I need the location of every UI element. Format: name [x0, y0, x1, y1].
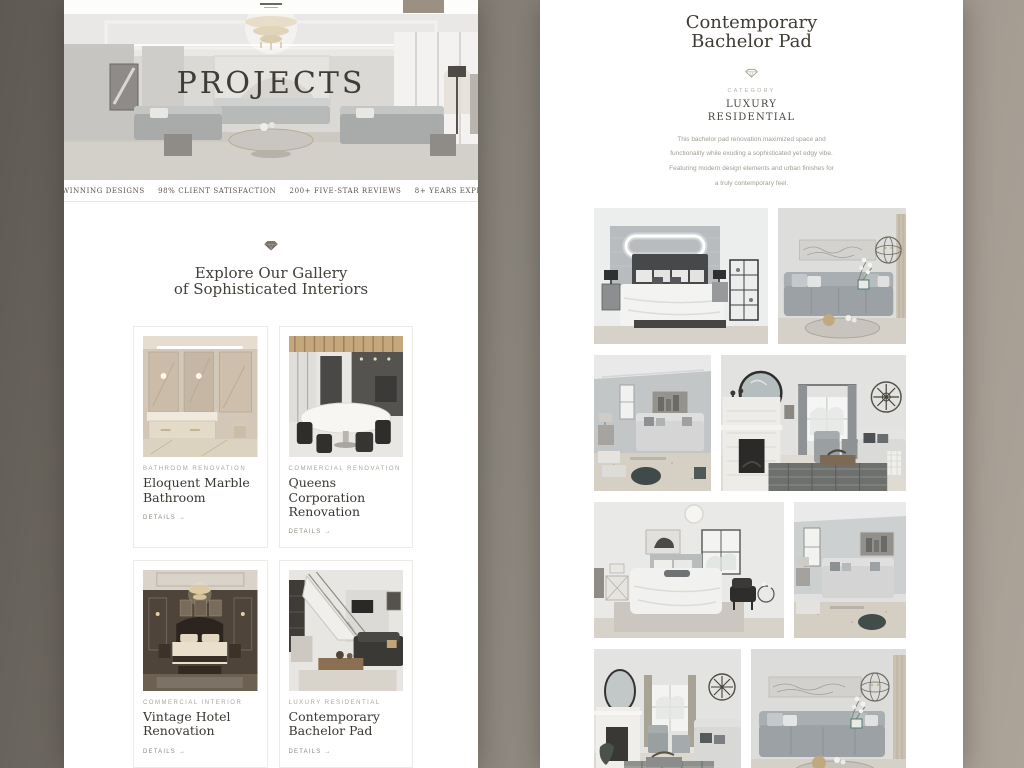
- project-detail-page: Contemporary Bachelor Pad CATEGORY LUXUR…: [540, 0, 963, 768]
- gallery-photo-sofa-art[interactable]: [778, 208, 906, 344]
- top-navbar: [64, 0, 478, 14]
- detail-title: Contemporary Bachelor Pad: [540, 14, 963, 52]
- stat-item: 200+ FIVE-STAR REVIEWS: [284, 187, 408, 195]
- page-title: PROJECTS: [64, 66, 478, 101]
- project-description: This bachelor pad renovation maximized s…: [637, 133, 867, 192]
- diamond-icon: [264, 238, 278, 256]
- project-card-bachelor-pad[interactable]: LUXURY RESIDENTIAL Contemporary Bachelor…: [279, 560, 414, 768]
- project-card-image[interactable]: [289, 336, 404, 457]
- gallery-photo-bedroom-white[interactable]: [594, 502, 784, 638]
- gallery-photo-bedroom-led[interactable]: [594, 208, 768, 344]
- card-details-link[interactable]: DETAILS →: [289, 749, 404, 755]
- detail-header: Contemporary Bachelor Pad CATEGORY LUXUR…: [540, 0, 963, 191]
- card-title: Vintage Hotel Renovation: [143, 710, 258, 739]
- gallery-row: [594, 649, 906, 768]
- stats-bar: WINNING DESIGNS 98% CLIENT SATISFACTION …: [64, 180, 478, 202]
- projects-page: PROJECTS WINNING DESIGNS 98% CLIENT SATI…: [64, 0, 478, 768]
- photo-gallery: [594, 208, 906, 768]
- gallery-photo-living-room[interactable]: [594, 355, 711, 491]
- project-card-image[interactable]: [143, 336, 258, 457]
- gallery-photo-fireplace-mirror[interactable]: [721, 355, 906, 491]
- card-category: COMMERCIAL RENOVATION: [289, 466, 404, 472]
- stat-item: WINNING DESIGNS: [64, 187, 151, 195]
- card-title: Contemporary Bachelor Pad: [289, 710, 404, 739]
- card-title: Queens Corporation Renovation: [289, 476, 404, 519]
- card-category: BATHROOM RENOVATION: [143, 466, 258, 472]
- card-category: COMMERCIAL INTERIOR: [143, 700, 258, 706]
- project-card-image[interactable]: [143, 570, 258, 691]
- stat-item: 8+ YEARS EXPER: [409, 187, 478, 195]
- gallery-photo-living-room-2[interactable]: [794, 502, 906, 638]
- project-cards-grid: BATHROOM RENOVATION Eloquent Marble Bath…: [133, 326, 413, 767]
- nav-cta-button[interactable]: [403, 0, 444, 13]
- card-details-link[interactable]: DETAILS →: [143, 749, 258, 755]
- category-value: LUXURY RESIDENTIAL: [540, 98, 963, 124]
- card-category: LUXURY RESIDENTIAL: [289, 700, 404, 706]
- category-label: CATEGORY: [540, 88, 963, 94]
- gallery-row: [594, 208, 906, 344]
- project-card-hotel[interactable]: COMMERCIAL INTERIOR Vintage Hotel Renova…: [133, 560, 268, 768]
- gallery-row: [594, 355, 906, 491]
- hero-section: PROJECTS: [64, 14, 478, 180]
- card-details-link[interactable]: DETAILS →: [143, 515, 258, 521]
- project-card-image[interactable]: [289, 570, 404, 691]
- section-heading: Explore Our Gallery of Sophisticated Int…: [64, 265, 478, 297]
- gallery-intro: Explore Our Gallery of Sophisticated Int…: [64, 202, 478, 297]
- gallery-photo-sofa-art-2[interactable]: [751, 649, 906, 768]
- gallery-row: [594, 502, 906, 638]
- site-logo[interactable]: [258, 3, 284, 10]
- stat-item: 98% CLIENT SATISFACTION: [152, 187, 282, 195]
- card-title: Eloquent Marble Bathroom: [143, 476, 258, 505]
- project-card-commercial[interactable]: COMMERCIAL RENOVATION Queens Corporation…: [279, 326, 414, 548]
- card-details-link[interactable]: DETAILS →: [289, 529, 404, 535]
- gallery-photo-fireplace-oval[interactable]: [594, 649, 741, 768]
- project-card-bathroom[interactable]: BATHROOM RENOVATION Eloquent Marble Bath…: [133, 326, 268, 548]
- diamond-icon: [540, 65, 963, 83]
